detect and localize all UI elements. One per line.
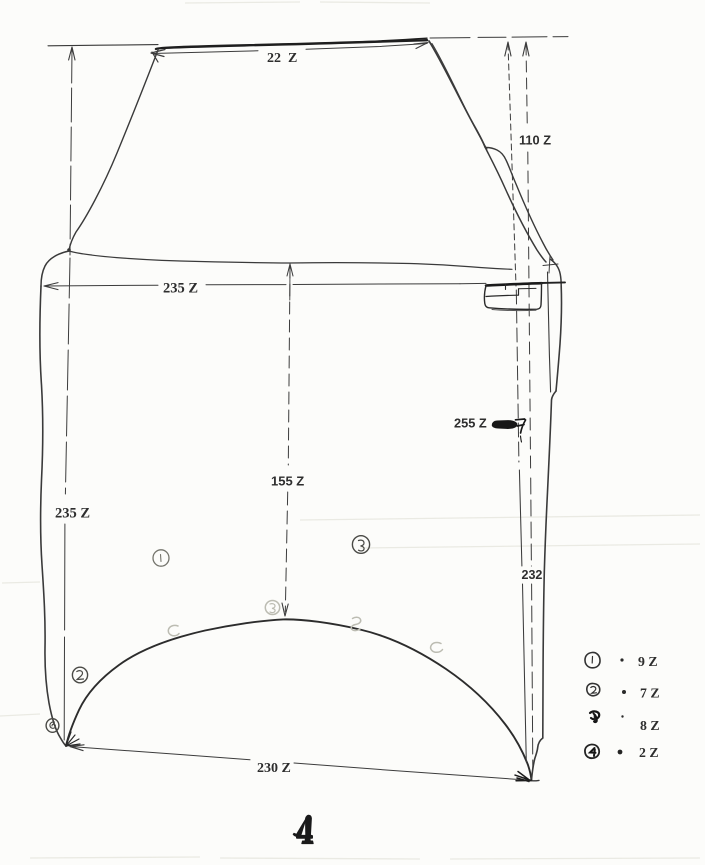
svg-text:7 Z: 7 Z (640, 686, 660, 701)
svg-text:155 Z: 155 Z (271, 474, 304, 489)
svg-text:230 Z: 230 Z (257, 761, 291, 776)
svg-text:255 Z: 255 Z (454, 416, 487, 431)
svg-text:8 Z: 8 Z (640, 718, 660, 733)
svg-text:235 Z: 235 Z (55, 506, 90, 522)
svg-text:9 Z: 9 Z (638, 654, 658, 669)
svg-text:110 Z: 110 Z (519, 133, 551, 148)
svg-text:235 Z: 235 Z (163, 281, 198, 297)
svg-text:22 Z: 22 Z (267, 51, 297, 66)
svg-text:232: 232 (522, 568, 543, 582)
svg-text:2 Z: 2 Z (639, 745, 659, 760)
